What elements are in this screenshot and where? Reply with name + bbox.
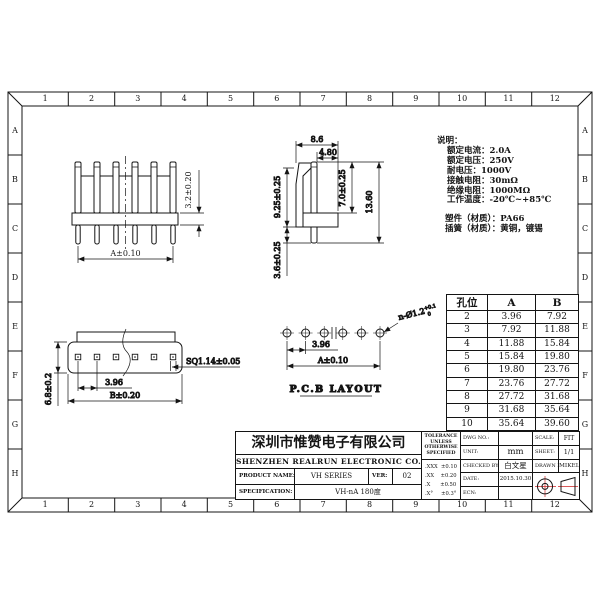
grid-col-label: 11 <box>485 92 531 106</box>
col-header-b: B <box>536 295 579 311</box>
front-view: A±0.10 3.2±0.20 <box>72 156 204 263</box>
note-line: 插簧（材质）：黄铜，镀锡 <box>445 225 589 235</box>
hole-position-table: 孔位 A B 23.967.9237.9211.88411.8815.84515… <box>446 294 579 431</box>
grid-col-label: 7 <box>300 498 346 512</box>
dwg-no-label: DWG NO.: <box>460 432 498 445</box>
grid-row-label: H <box>578 449 592 498</box>
grid-col-label: 5 <box>207 92 253 106</box>
grid-row-label: F <box>8 351 22 400</box>
pcb-width-dim: A±0.10 <box>317 356 348 365</box>
drawing-sheet: { "frame": { "cols": ["1","2","3","4","5… <box>0 0 600 600</box>
product-name-label: PRODUCT NAME: <box>236 468 294 484</box>
grid-row-label: G <box>578 400 592 449</box>
grid-col-label: 10 <box>439 92 485 106</box>
table-row: 931.6835.64 <box>447 404 579 417</box>
table-row: 411.8815.84 <box>447 337 579 350</box>
col-header-a: A <box>488 295 536 311</box>
grid-col-label: 2 <box>68 498 114 512</box>
grid-col-label: 8 <box>346 498 392 512</box>
table-row: 515.8419.80 <box>447 350 579 363</box>
grid-col-label: 7 <box>300 92 346 106</box>
tolerance-title: TOLERANCE UNLESS OTHERWISE SPECIFIED <box>421 432 460 459</box>
grid-col-label: 1 <box>22 92 68 106</box>
pcb-hole-dim: n-Ø1.2+0.10 <box>397 303 438 325</box>
grid-row-label: B <box>8 155 22 204</box>
grid-row-label: D <box>8 253 22 302</box>
table-row: 827.7231.68 <box>447 390 579 403</box>
grid-row-label: E <box>8 302 22 351</box>
side-total-dim: 13.60 <box>365 191 374 214</box>
specification-value: VH-nA 180度 <box>294 484 421 500</box>
scale-value: FIT <box>558 432 579 445</box>
sheet-value: 1/1 <box>558 445 579 458</box>
pcb-pitch-dim: 3.96 <box>312 340 330 349</box>
grid-col-label: 12 <box>532 92 578 106</box>
grid-col-label: 4 <box>161 498 207 512</box>
bottom-pitch-dim: 3.96 <box>105 378 123 387</box>
grid-col-label: 10 <box>439 498 485 512</box>
grid-col-label: 9 <box>393 498 439 512</box>
grid-col-label: 3 <box>115 498 161 512</box>
grid-col-label: 1 <box>22 498 68 512</box>
version-value: 02 <box>392 468 421 484</box>
grid-col-label: 12 <box>532 498 578 512</box>
col-header-position: 孔位 <box>447 295 488 311</box>
product-name-value: VH SERIES <box>294 468 368 484</box>
notes-block: 说明： 额定电流：2.0A额定电压：250V耐电压：1000V接触电阻：30mΩ… <box>437 137 589 235</box>
grid-col-label: 2 <box>68 92 114 106</box>
table-row: 23.967.92 <box>447 311 579 324</box>
projection-symbol <box>532 472 579 499</box>
bottom-square-dim: SQ1.14±0.05 <box>186 357 240 366</box>
sheet-label: SHEET: <box>532 445 558 458</box>
grid-col-label: 4 <box>161 92 207 106</box>
unit-value: mm <box>498 445 532 458</box>
grid-row-label: A <box>8 106 22 155</box>
notes-items: 额定电流：2.0A额定电压：250V耐电压：1000V接触电阻：30mΩ绝缘电阻… <box>447 147 589 206</box>
grid-row-label: C <box>8 204 22 253</box>
pcb-layout-view: 3.96 A±0.10 n-Ø1.2+0.10 P.C.B LAYOUT <box>280 303 438 396</box>
table-row: 723.7627.72 <box>447 377 579 390</box>
grid-col-label: 9 <box>393 92 439 106</box>
bottom-view: 3.96 B±0.20 SQ1.14±0.05 6.8±0.2 <box>44 329 240 406</box>
grid-col-label: 11 <box>485 498 531 512</box>
scale-label: SCALE: <box>532 432 558 445</box>
front-width-dim: A±0.10 <box>109 249 140 258</box>
grid-col-label: 6 <box>254 498 300 512</box>
grid-row-label: F <box>578 351 592 400</box>
notes-materials: 塑件（材质）：PA66插簧（材质）：黄铜，镀锡 <box>445 215 589 235</box>
side-view: 8.6 4.80 9.25±0.25 7.0±0.25 13.60 3.6±0.… <box>273 135 384 279</box>
checked-by-value: 白文星 <box>498 459 532 472</box>
drawn-by-label: DRAWN BY: <box>532 459 558 472</box>
table-header-row: 孔位 A B <box>447 295 579 311</box>
company-name-en: SHENZHEN REALRUN ELECTRONIC CO., LTD. <box>236 454 421 468</box>
grid-row-label: D <box>578 253 592 302</box>
tolerance-values: .XXX ±0.10.XX ±0.20.X ±0.50.X° ±0.3° <box>421 459 460 499</box>
grid-col-label: 8 <box>346 92 392 106</box>
bottom-height-dim: 6.8±0.2 <box>44 373 53 405</box>
pcb-layout-title: P.C.B LAYOUT <box>290 384 383 395</box>
side-tail-dim: 3.6±0.25 <box>273 241 282 278</box>
grid-row-label: G <box>8 400 22 449</box>
front-height-dim: 3.2±0.20 <box>184 171 193 208</box>
checked-by-label: CHECKED BY: <box>460 459 498 472</box>
ecn-label: ECN: <box>460 486 498 499</box>
date-value: 2015.10.30 <box>498 472 532 485</box>
side-top-dim: 8.6 <box>311 135 324 144</box>
ecn-value <box>498 486 532 499</box>
dwg-no-value <box>498 432 532 445</box>
table-row: 619.8023.76 <box>447 364 579 377</box>
table-row: 37.9211.88 <box>447 324 579 337</box>
date-label: DATE: <box>460 472 498 485</box>
grid-row-label: H <box>8 449 22 498</box>
bottom-width-dim: B±0.20 <box>110 391 140 400</box>
side-left-dim: 9.25±0.25 <box>273 176 282 218</box>
side-pin-dim: 7.0±0.25 <box>338 169 347 206</box>
version-label: VER: <box>368 468 392 484</box>
third-angle-projection-icon <box>533 473 579 499</box>
table-row: 1035.6439.60 <box>447 417 579 430</box>
note-line: 工作温度：-20℃~+85℃ <box>447 196 589 206</box>
drawn-by-value: MIKEL <box>558 459 579 472</box>
grid-row-label: E <box>578 302 592 351</box>
side-inner-dim: 4.80 <box>319 148 337 157</box>
company-name: 深圳市惟赞电子有限公司 <box>236 432 421 454</box>
grid-col-label: 3 <box>115 92 161 106</box>
specification-label: SPECIFICATION: <box>236 484 294 500</box>
grid-col-label: 5 <box>207 498 253 512</box>
unit-label: UNIT: <box>460 445 498 458</box>
grid-col-label: 6 <box>254 92 300 106</box>
title-block: 深圳市惟赞电子有限公司 SHENZHEN REALRUN ELECTRONIC … <box>235 431 580 500</box>
